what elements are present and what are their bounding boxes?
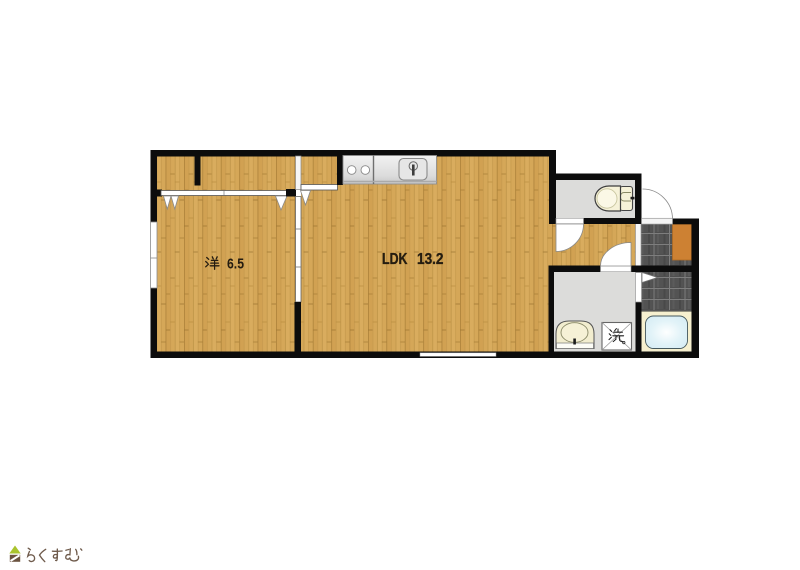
svg-text:6.5: 6.5 [227, 257, 244, 273]
svg-text:LDK: LDK [382, 251, 408, 268]
svg-text:13.2: 13.2 [417, 251, 444, 268]
